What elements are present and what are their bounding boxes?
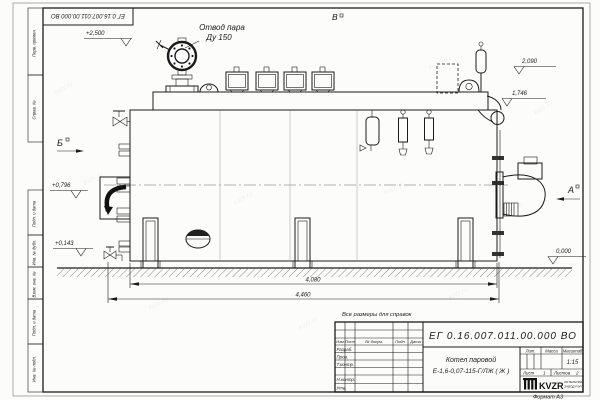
tb-scale-value: 1:15	[567, 360, 579, 366]
dimension-value: 4,080	[305, 278, 321, 284]
steam-outlet-label: Отвод пара	[199, 23, 245, 32]
tb-sheets-value: 2	[575, 371, 579, 376]
tb-col-izm: Изм	[336, 339, 344, 344]
elevation-value: +0,143	[55, 241, 74, 247]
tb-row-label: Н.контр.	[337, 377, 356, 382]
elevation-mark: 0,000	[548, 249, 586, 264]
boiler-body	[130, 110, 497, 261]
elevation-mark: 1,746	[502, 91, 546, 106]
elevation-mark: +0,143	[53, 241, 93, 256]
rear-wall-flanges	[492, 130, 504, 258]
manhole	[186, 230, 210, 248]
elevation-mark: 2,090	[514, 59, 556, 74]
elevation-value: 2,090	[521, 59, 538, 65]
drain-valve	[104, 247, 122, 261]
tb-row-label: Т.контр.	[337, 362, 355, 367]
tb-doc-number: ЕГ 0.16.007.011.00.000 ВО	[429, 331, 577, 342]
front-wall-nozzles	[117, 144, 130, 252]
watermark-text: kvzr.ru	[83, 171, 105, 187]
blueprint-page: kvzr.ru kvzr.ru kvzr.ru kvzr.ru kvzr.ru …	[0, 0, 600, 400]
view-letter: В	[332, 12, 338, 22]
view-letter: Б	[57, 138, 63, 148]
tb-scale-label: Масштаб	[563, 348, 583, 353]
watermark-text: kvzr.ru	[53, 81, 75, 97]
elevation-mark: +0,796	[50, 183, 88, 198]
watermark-text: kvzr.ru	[233, 191, 255, 207]
valve-cap	[256, 67, 278, 92]
watermark-text: kvzr.ru	[533, 101, 555, 117]
drum-dome	[200, 84, 218, 92]
tb-brand-sub: КОТЕЛЬНЫЙ	[564, 380, 584, 384]
valve-cap	[226, 67, 248, 92]
margin-cell-label: Справ. №	[32, 100, 37, 119]
margin-cell-label: Взам. инв. №	[32, 271, 37, 297]
tb-col-docnum: № докум.	[365, 339, 383, 344]
water-level-gauge	[399, 110, 408, 155]
dashed-outline-box	[437, 64, 458, 93]
elevation-value: +2,500	[86, 31, 105, 37]
view-marker-right: А	[556, 185, 580, 201]
dimension-value: 4,460	[295, 293, 311, 299]
tb-sheet-value: 1	[543, 371, 546, 376]
watermark-text: kvzr.ru	[298, 316, 320, 332]
tb-sheet-label: Лист	[522, 371, 535, 376]
margin-cell-label: Инв. № дубл.	[32, 240, 37, 266]
elevation-mark: +2,500	[84, 31, 132, 46]
view-letter: А	[567, 185, 574, 195]
tb-row-label: Разраб.	[337, 347, 353, 352]
tb-col-podp: Подп.	[395, 339, 406, 344]
tb-col-data: Дата	[409, 339, 421, 344]
steam-outlet-valve	[156, 38, 198, 92]
steam-outlet-dn: Ду 150	[205, 33, 232, 42]
kvzr-logo-icon	[523, 378, 537, 390]
margin-cell-label: Подп. и дата	[32, 200, 37, 227]
watermark-text: kvzr.ru	[448, 286, 470, 302]
tb-product-type: Е-1,6-0,07-115-Г/ЛЖ ( Ж )	[433, 368, 510, 375]
sample-cooler	[360, 110, 379, 151]
watermark-text: kvzr.ru	[383, 181, 405, 197]
watermark-text: kvzr.ru	[148, 296, 170, 312]
tb-row-label: Пров.	[337, 354, 349, 359]
boiler-side-view	[57, 38, 572, 277]
title-block: Изм Лист № докум. Подп. Дата Разраб. Про…	[335, 322, 584, 392]
tb-mass-label: Масса	[545, 348, 558, 353]
top-stamp-number: ЕГ 0.16.007.011.00.000 ВО	[51, 12, 125, 18]
view-marker-left: Б	[57, 138, 84, 153]
steam-outlet-callout: Отвод пара Ду 150	[185, 23, 245, 48]
elevation-value: 1,746	[512, 91, 528, 97]
tb-lit-label: Лит.	[525, 348, 536, 353]
ground-line	[57, 268, 572, 277]
tb-brand-name: KVZR	[539, 381, 564, 391]
top-stamp: ЕГ 0.16.007.011.00.000 ВО	[43, 8, 133, 25]
tb-col-list: Лист	[344, 339, 356, 344]
lifting-lug	[459, 80, 479, 92]
gas-duct-box	[100, 177, 130, 219]
margin-cell-label: Инв. № подл.	[32, 356, 37, 382]
margin-cell-label: Перв. примен.	[32, 29, 37, 57]
elevation-value: 0,000	[556, 249, 572, 255]
margin-column: Перв. примен. Справ. № Подп. и дата Инв.…	[28, 8, 43, 392]
valve-cap	[312, 67, 334, 92]
tb-brand-sub: ЗАВОД РЭП	[564, 385, 583, 389]
reference-note: Все размеры для справок	[342, 312, 412, 318]
steam-drum	[153, 92, 488, 110]
elevation-value: +0,796	[52, 183, 71, 189]
upper-left-valve	[113, 111, 130, 126]
tb-product-name: Котел паровой	[446, 356, 496, 364]
drawing-canvas: kvzr.ru kvzr.ru kvzr.ru kvzr.ru kvzr.ru …	[0, 0, 600, 400]
tb-sheets-label: Листов	[553, 371, 571, 376]
water-level-gauge	[425, 110, 434, 154]
kvzr-logo: KVZR КОТЕЛЬНЫЙ ЗАВОД РЭП	[523, 378, 584, 391]
margin-cell-label: Подп. и дата	[32, 309, 37, 336]
tb-row-label: Утв.	[337, 386, 347, 391]
safety-valve-caps	[226, 67, 334, 92]
format-label: Формат А3	[533, 395, 564, 400]
view-marker-top: В	[332, 12, 343, 22]
